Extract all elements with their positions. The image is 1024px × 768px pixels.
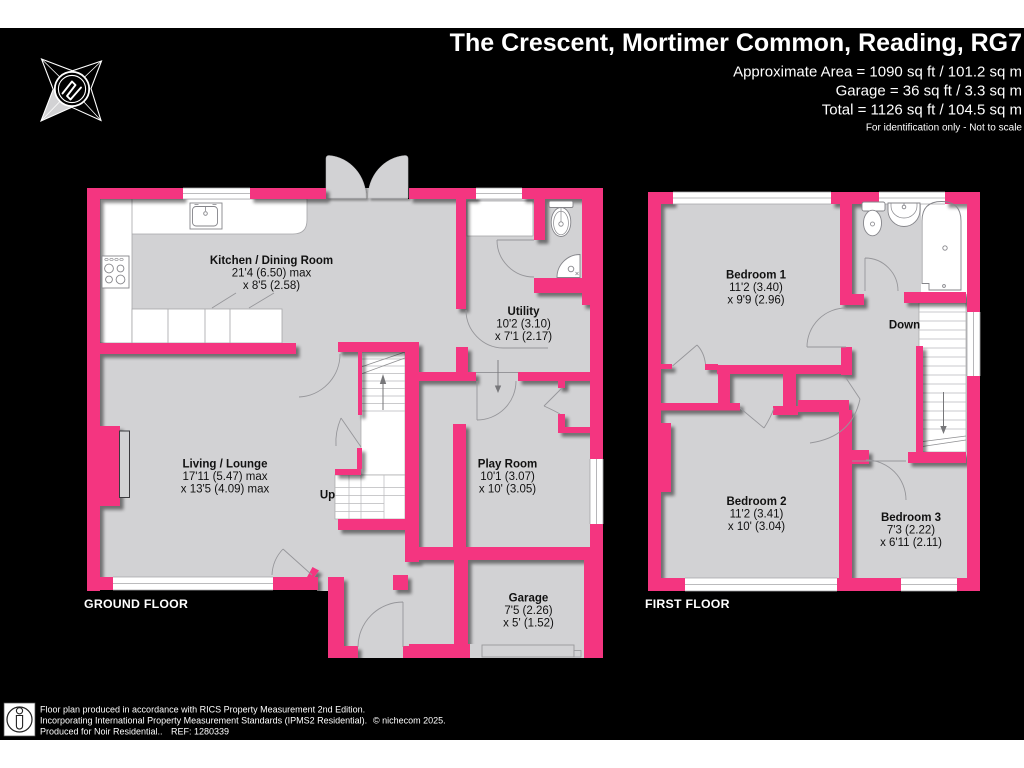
svg-text:Approximate Area = 1090 sq ft: Approximate Area = 1090 sq ft / 101.2 sq… xyxy=(733,64,1022,81)
svg-text:REF: 1280339: REF: 1280339 xyxy=(171,727,229,737)
svg-text:17'11 (5.47) max: 17'11 (5.47) max xyxy=(182,471,267,483)
svg-text:Bedroom 2: Bedroom 2 xyxy=(726,496,786,508)
svg-text:x 13'5 (4.09) max: x 13'5 (4.09) max xyxy=(181,484,270,496)
svg-text:The Crescent, Mortimer Common,: The Crescent, Mortimer Common, Reading, … xyxy=(450,29,1022,57)
svg-text:For identification only - Not: For identification only - Not to scale xyxy=(866,123,1023,134)
svg-text:11'2 (3.41): 11'2 (3.41) xyxy=(730,509,784,521)
svg-text:Garage = 36 sq ft / 3.3 sq m: Garage = 36 sq ft / 3.3 sq m xyxy=(836,83,1022,100)
svg-text:FIRST FLOOR: FIRST FLOOR xyxy=(645,597,730,611)
svg-text:11'2 (3.40): 11'2 (3.40) xyxy=(729,282,783,294)
svg-text:Play Room: Play Room xyxy=(478,459,537,471)
svg-text:7'5 (2.26): 7'5 (2.26) xyxy=(504,605,552,617)
svg-text:Living / Lounge: Living / Lounge xyxy=(183,459,268,471)
svg-text:x 9'9 (2.96): x 9'9 (2.96) xyxy=(727,295,784,307)
svg-text:Bedroom 3: Bedroom 3 xyxy=(881,512,941,524)
svg-text:x 8'5 (2.58): x 8'5 (2.58) xyxy=(243,280,300,292)
svg-text:21'4 (6.50) max: 21'4 (6.50) max xyxy=(232,268,312,280)
svg-text:Bedroom 1: Bedroom 1 xyxy=(726,270,787,282)
svg-text:© nichecom 2025.: © nichecom 2025. xyxy=(373,716,446,726)
svg-text:10'2 (3.10): 10'2 (3.10) xyxy=(496,319,551,331)
svg-text:x 7'1 (2.17): x 7'1 (2.17) xyxy=(495,331,552,343)
svg-text:Incorporating International Pr: Incorporating International Property Mea… xyxy=(40,716,367,726)
svg-text:Produced for Noir Residential.: Produced for Noir Residential.. xyxy=(40,727,163,737)
svg-text:10'1 (3.07): 10'1 (3.07) xyxy=(480,471,535,483)
svg-text:x 10' (3.04): x 10' (3.04) xyxy=(728,521,785,533)
svg-text:Up: Up xyxy=(320,490,335,502)
svg-text:Down: Down xyxy=(889,320,920,332)
svg-text:Utility: Utility xyxy=(508,306,541,318)
svg-text:Floor plan produced in accorda: Floor plan produced in accordance with R… xyxy=(40,705,365,715)
svg-text:GROUND FLOOR: GROUND FLOOR xyxy=(84,597,188,611)
svg-text:Garage: Garage xyxy=(509,593,549,605)
svg-text:Total = 1126 sq ft / 104.5 sq: Total = 1126 sq ft / 104.5 sq m xyxy=(822,102,1022,119)
svg-text:x 10' (3.05): x 10' (3.05) xyxy=(479,484,536,496)
svg-text:x 5' (1.52): x 5' (1.52) xyxy=(503,618,554,630)
svg-text:Kitchen / Dining Room: Kitchen / Dining Room xyxy=(210,255,333,267)
svg-text:x 6'11 (2.11): x 6'11 (2.11) xyxy=(880,537,942,549)
svg-text:7'3 (2.22): 7'3 (2.22) xyxy=(887,525,935,537)
